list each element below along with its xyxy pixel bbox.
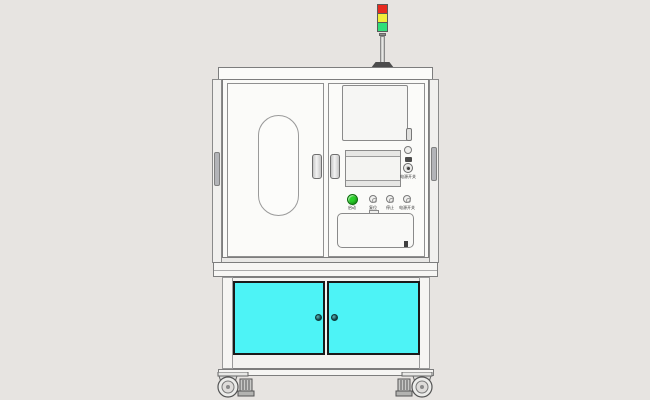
start-button <box>347 194 358 205</box>
lower-right-door <box>327 281 420 355</box>
right-side-handle <box>431 147 437 181</box>
reset-button <box>369 195 377 203</box>
power-switch-label: 电源开关 <box>396 174 420 179</box>
machine-render: 电源开关 启动 复位 停止 电源开关 <box>0 0 650 400</box>
tray-lock <box>404 241 408 247</box>
hmi-top-bezel <box>346 151 400 157</box>
tower-green-lamp <box>377 22 388 32</box>
power-button <box>403 195 411 203</box>
tower-light-pole <box>380 36 385 63</box>
hmi-screen <box>345 150 401 187</box>
start-button-label: 启动 <box>342 205 362 210</box>
door-inspection-window <box>258 115 299 216</box>
right-caster-wheel <box>390 372 436 398</box>
lower-right-door-knob <box>331 314 338 321</box>
lower-frame-right-post <box>419 277 430 369</box>
power-switch-knob <box>403 163 413 173</box>
stop-button <box>386 195 394 203</box>
right-door-handle <box>330 154 340 179</box>
power-button-label: 电源开关 <box>394 205 420 210</box>
output-tray-panel <box>337 213 414 248</box>
monitor-window <box>342 85 408 141</box>
frame-band-seam <box>214 270 437 271</box>
hmi-bottom-bezel <box>346 180 400 186</box>
left-door-handle <box>312 154 322 179</box>
lower-frame-left-post <box>222 277 233 369</box>
lower-left-door-knob <box>315 314 322 321</box>
left-caster-wheel <box>214 372 260 398</box>
left-side-handle <box>214 152 220 186</box>
lower-left-door <box>233 281 325 355</box>
connector-port <box>405 157 412 162</box>
power-indicator-light <box>404 146 412 154</box>
window-latch <box>406 128 412 141</box>
table-frame-band <box>213 262 438 277</box>
